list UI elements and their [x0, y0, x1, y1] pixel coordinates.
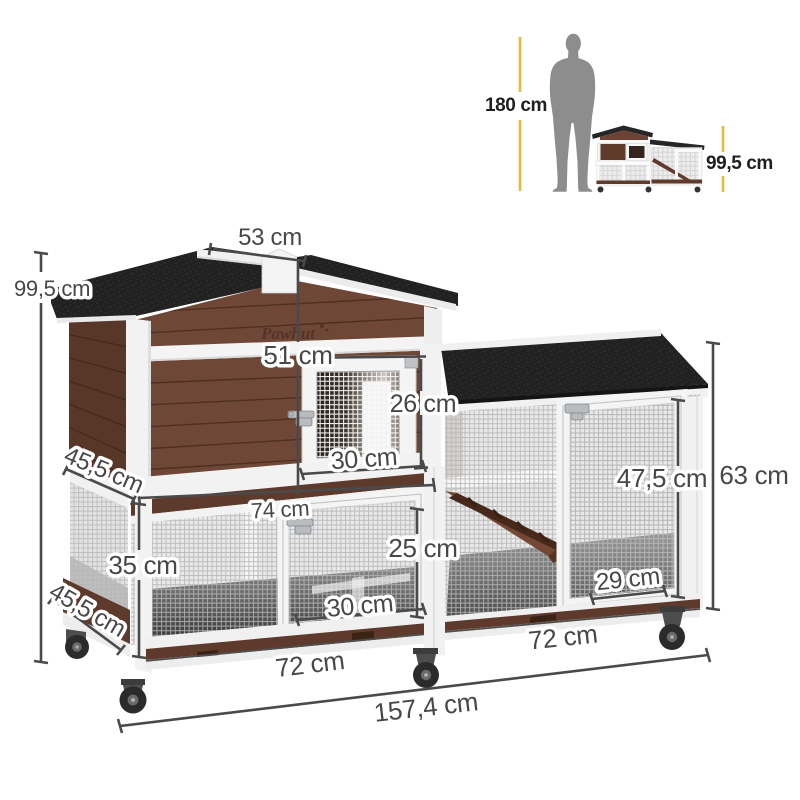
svg-text:53 cm: 53 cm: [238, 224, 302, 251]
svg-text:63 cm: 63 cm: [719, 460, 788, 490]
svg-text:30 cm: 30 cm: [326, 589, 395, 623]
svg-text:35 cm: 35 cm: [108, 550, 177, 580]
svg-text:99,5 cm: 99,5 cm: [14, 276, 90, 301]
svg-text:99,5 cm: 99,5 cm: [706, 153, 773, 174]
svg-text:74 cm: 74 cm: [250, 495, 310, 523]
svg-text:180 cm: 180 cm: [485, 95, 547, 116]
svg-text:26 cm: 26 cm: [390, 390, 457, 418]
svg-text:51 cm: 51 cm: [263, 340, 332, 370]
svg-text:47,5 cm: 47,5 cm: [617, 463, 707, 493]
svg-text:25 cm: 25 cm: [388, 533, 457, 563]
svg-text:30 cm: 30 cm: [330, 443, 398, 476]
